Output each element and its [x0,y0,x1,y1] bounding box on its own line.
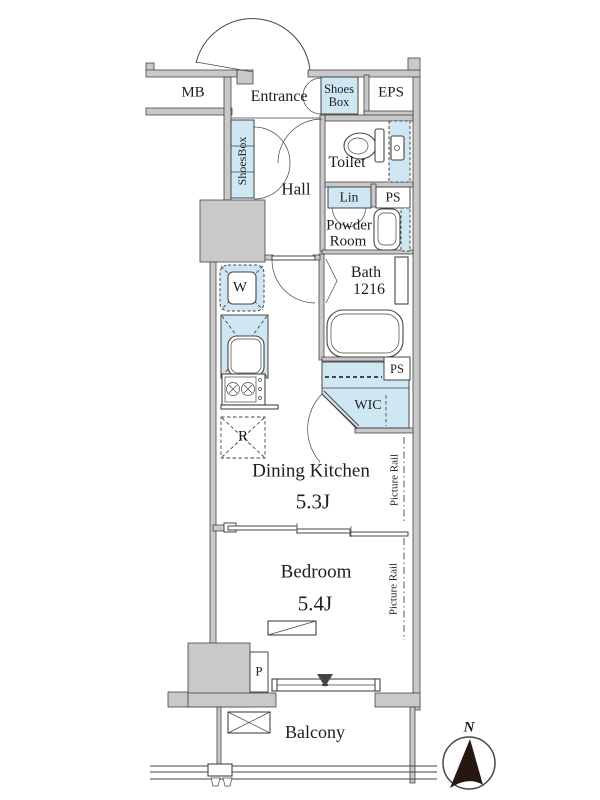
powder-room-label-line1: Powder [326,219,372,234]
balcony-railing [150,764,437,786]
bedroom-counter [268,621,316,635]
north-label: N [464,721,475,736]
powder-room-label-line2: Room [330,235,367,250]
powder-side-strip [401,208,410,251]
entrance-label: Entrance [251,89,308,105]
picture-rail-bedroom-label: Picture Rail [389,563,400,615]
kitchen-counter [221,315,268,378]
bath-label: Bath [351,265,381,281]
shoes-box-label-line1: Shoes [324,83,354,96]
ps-upper-label: PS [385,190,400,204]
ps-middle-label: PS [390,363,404,376]
picture-rail-dk-label: Picture Rail [390,454,401,506]
dining-kitchen-size-label: 5.3J [296,492,330,513]
hall-dk-door [272,256,315,303]
gas-stove [221,374,278,409]
sliding-partition [224,523,408,537]
linen-label: Lin [340,190,359,204]
balcony-ac-unit [228,712,270,733]
entrance-door [196,19,310,72]
shoes-box-column-label: ShoesBox [236,137,248,186]
shoes-box-label-line2: Box [329,96,350,109]
counter-end-panel [221,405,278,409]
balcony-label: Balcony [285,723,345,741]
bath-counter [395,257,408,304]
kitchen-sink [228,336,264,376]
washer-label: W [233,281,247,296]
compass-icon [443,737,495,789]
powder-basin [374,209,400,250]
hall-label: Hall [281,181,310,198]
balcony-drain [208,764,232,776]
toilet-label: Toilet [328,155,365,171]
floor-plan-drawing [0,0,600,800]
dining-kitchen-label: Dining Kitchen [252,462,370,481]
floor-plan: MB Entrance Shoes Box EPS ShoesBox Toile… [0,0,600,800]
bath-folding-door [326,259,337,303]
bedroom-label: Bedroom [281,563,352,582]
eps-label: EPS [378,86,404,101]
pipe-label: P [255,665,262,678]
toilet-side-panel [389,121,410,182]
toilet-door [278,119,322,163]
bath-size-label: 1216 [353,282,385,298]
bedroom-size-label: 5.4J [298,594,332,615]
mb-label: MB [181,86,204,101]
wic-label: WIC [354,399,381,413]
refrigerator-label: R [238,430,248,445]
